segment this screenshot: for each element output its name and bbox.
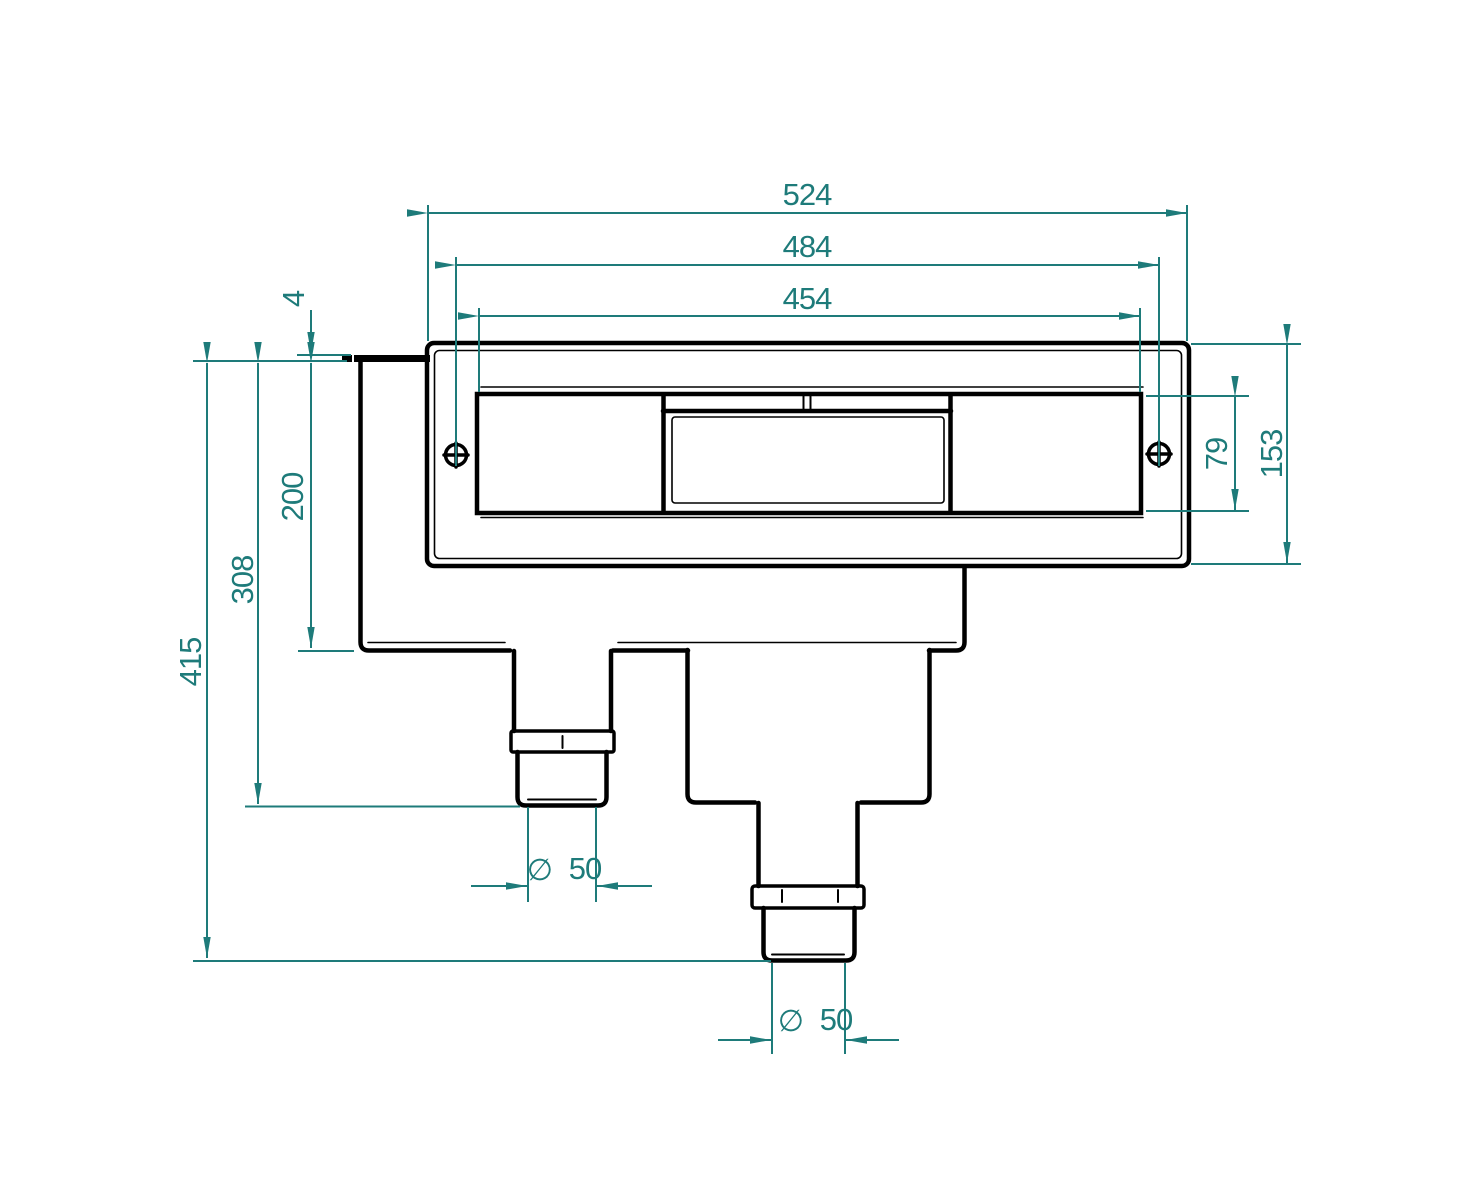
pipe-bottom-collar: [752, 886, 864, 908]
dim-label-415: 415: [173, 638, 208, 687]
dim-label-200: 200: [275, 472, 310, 521]
dim-label-dia50-bottom: 50: [820, 1002, 853, 1037]
dim-label-4: 4: [276, 290, 311, 307]
faceplate-inner-offset: [435, 351, 1182, 559]
skimmer-technical-drawing: 524 484 454 4 200 308 415 79 153 ∅ 50 ∅ …: [0, 0, 1467, 1200]
technical-drawing-canvas: 524 484 454 4 200 308 415 79 153 ∅ 50 ∅ …: [0, 0, 1467, 1200]
dim-label-484: 484: [783, 229, 832, 264]
body-lip: [342, 355, 430, 362]
skimmer-opening: [477, 394, 1141, 513]
dim-symbol-dia50-bottom: ∅: [778, 1004, 804, 1039]
pipe-left-stub: [518, 752, 607, 806]
dimension-labels: 524 484 454 4 200 308 415 79 153 ∅ 50 ∅ …: [173, 177, 1289, 1039]
pipe-left: [511, 651, 614, 806]
dim-label-524: 524: [783, 177, 832, 212]
dim-label-308: 308: [225, 556, 260, 605]
weir-door-panel: [672, 417, 944, 503]
dim-label-153: 153: [1254, 430, 1289, 479]
pipe-bottom-stub: [764, 908, 855, 961]
faceplate: [427, 343, 1189, 566]
faceplate-outer: [427, 343, 1189, 566]
dim-label-454: 454: [783, 281, 832, 316]
dimension-lines: [207, 213, 1287, 1040]
sump-right-wall: [861, 650, 930, 803]
dim-label-dia50-left: 50: [569, 851, 602, 886]
sump-left-wall: [688, 650, 756, 803]
sump-box: [688, 650, 930, 803]
dim-label-79: 79: [1199, 438, 1234, 470]
pipe-bottom: [752, 803, 864, 961]
body-right-wall: [929, 567, 965, 651]
dim-symbol-dia50-left: ∅: [527, 853, 553, 888]
